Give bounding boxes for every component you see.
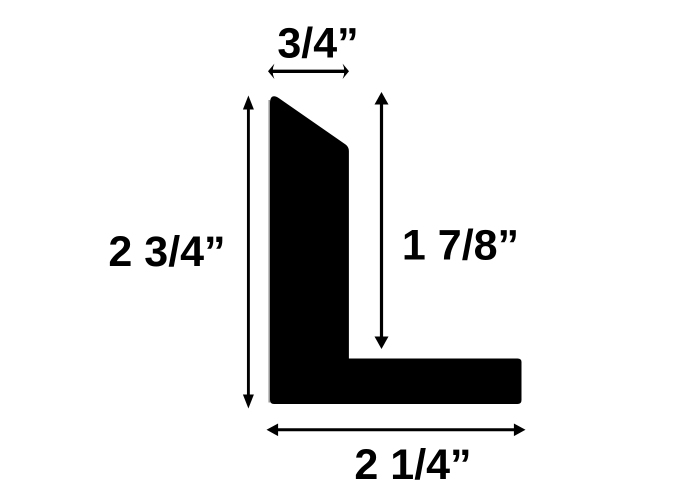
svg-text:3/4”: 3/4” [277, 20, 358, 68]
svg-text:2 1/4”: 2 1/4” [354, 441, 471, 489]
svg-text:2 3/4”: 2 3/4” [108, 228, 225, 276]
svg-text:1 7/8”: 1 7/8” [402, 222, 519, 270]
